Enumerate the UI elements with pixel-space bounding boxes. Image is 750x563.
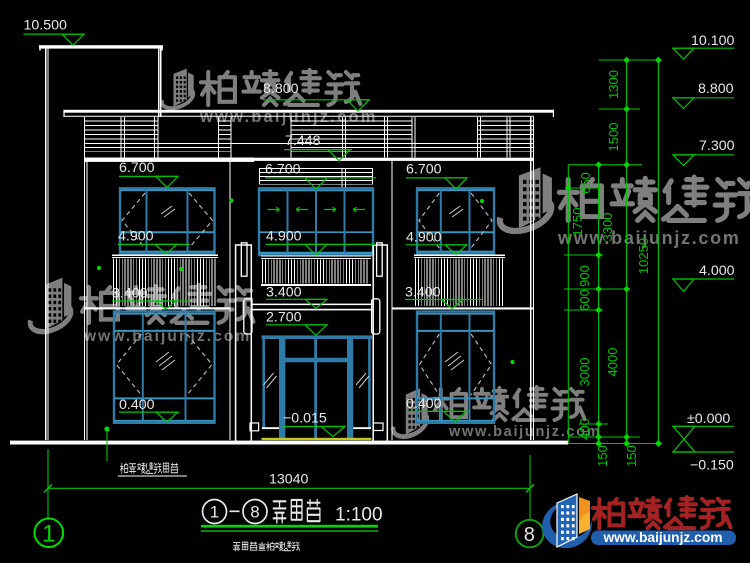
svg-text:7.300: 7.300 [699,138,735,154]
svg-text:4.900: 4.900 [406,230,442,246]
svg-text:150: 150 [624,445,639,467]
svg-text:7.448: 7.448 [285,133,321,149]
svg-text:6.700: 6.700 [265,162,301,178]
svg-text:2.700: 2.700 [266,310,302,326]
svg-text:3.400: 3.400 [266,285,302,301]
svg-text:4.900: 4.900 [266,229,302,245]
svg-text:1300: 1300 [606,70,621,99]
svg-text:6.700: 6.700 [406,162,442,178]
svg-text:−0.015: −0.015 [283,411,327,427]
svg-text:4000: 4000 [605,348,620,377]
svg-text:650: 650 [578,172,593,194]
svg-text:10250: 10250 [636,238,651,274]
svg-text:6.700: 6.700 [119,160,155,176]
svg-text:1: 1 [210,503,219,522]
svg-text:13040: 13040 [269,472,309,488]
svg-text:3000: 3000 [577,358,592,387]
svg-text:1750: 1750 [570,208,585,237]
svg-text:1:100: 1:100 [335,505,383,526]
svg-text:www.baijunjz.com: www.baijunjz.com [602,530,722,545]
svg-text:1500: 1500 [606,123,621,152]
svg-text:1: 1 [42,521,55,548]
svg-text:900: 900 [577,265,592,287]
svg-text:10.500: 10.500 [24,18,68,34]
svg-text:8.800: 8.800 [263,81,299,97]
svg-text:400: 400 [577,418,592,440]
svg-text:−0.150: −0.150 [690,458,734,474]
svg-text:0.400: 0.400 [119,397,155,413]
svg-text:3300: 3300 [600,213,615,242]
svg-text:4.900: 4.900 [118,229,154,245]
svg-text:±0.000: ±0.000 [687,411,730,427]
svg-text:0.400: 0.400 [406,396,442,412]
svg-text:10.100: 10.100 [691,33,735,49]
svg-text:600: 600 [577,289,592,311]
svg-text:4.000: 4.000 [699,263,735,279]
svg-text:8: 8 [250,503,259,522]
svg-text:150: 150 [595,445,610,467]
svg-text:8: 8 [524,524,535,546]
svg-text:8.800: 8.800 [698,81,734,97]
svg-text:3.400: 3.400 [405,285,441,301]
svg-text:3.400: 3.400 [112,286,148,302]
